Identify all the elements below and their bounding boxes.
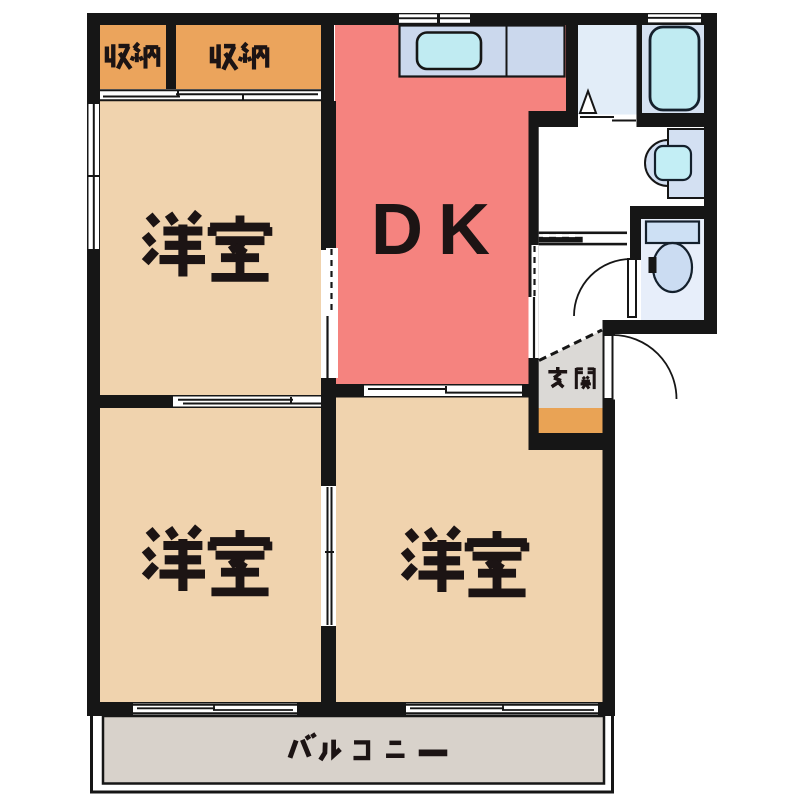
svg-text:DK: DK <box>371 190 505 270</box>
